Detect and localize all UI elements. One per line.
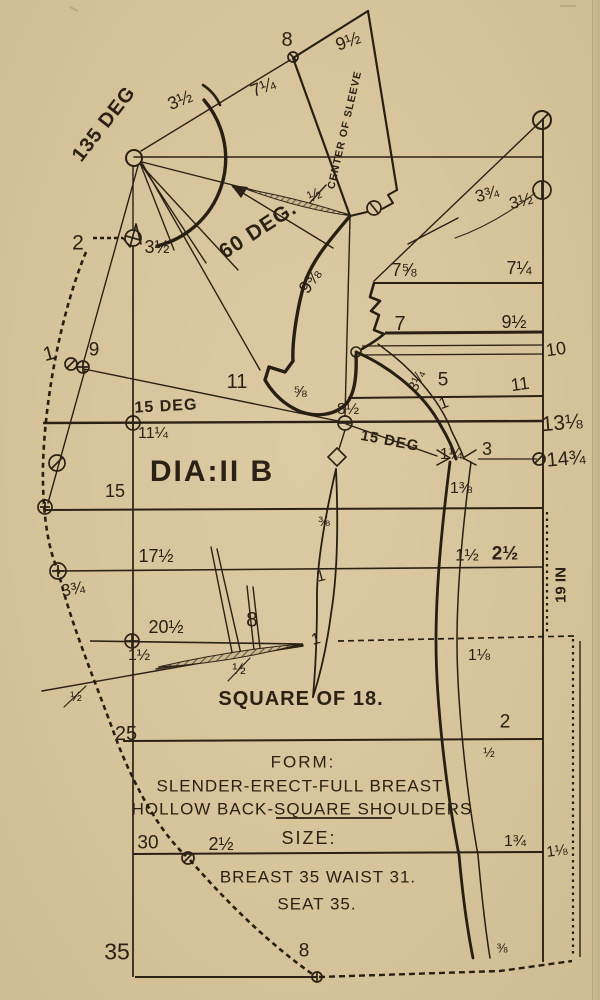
meas-8-mid: 8 xyxy=(246,610,258,631)
meas-half-left: ½ xyxy=(70,689,82,703)
angle-15-deg-left: 15 DEG xyxy=(134,397,198,416)
meas-9half-sleeve: 9½ xyxy=(333,28,363,53)
meas-1-scye: 1 xyxy=(437,395,451,413)
meas-8-top: 8 xyxy=(281,30,292,50)
meas-9threeeighths: 9⅜ xyxy=(295,266,324,297)
meas-7quarter-right: 7¼ xyxy=(506,259,531,277)
meas-9half-right: 9½ xyxy=(501,313,526,331)
meas-1oneeighth-right: 1⅛ xyxy=(546,842,569,860)
meas-threeeighths-bottom: ⅜ xyxy=(497,942,508,955)
meas-11quarter: 11¼ xyxy=(138,426,168,442)
meas-1threequarter-bottom: 1¾ xyxy=(504,834,526,850)
size-line-1: BREAST 35 WAIST 31. xyxy=(220,869,416,886)
meas-2-topleft: 2 xyxy=(72,233,84,254)
meas-1threeeighths: 1⅜ xyxy=(450,481,472,497)
meas-threeeighths-dart: ⅜ xyxy=(318,514,330,528)
meas-3quarter-scye: 3¼ xyxy=(406,368,428,393)
meas-3threequarter-right: 3¾ xyxy=(473,183,500,206)
meas-5: 5 xyxy=(438,371,449,390)
meas-2half-right: 2½ xyxy=(492,545,518,564)
angle-60-deg: 60 DEG. xyxy=(216,197,301,262)
meas-1oneeighth-mid: 1⅛ xyxy=(468,648,490,664)
meas-3: 3 xyxy=(482,440,492,458)
meas-15: 15 xyxy=(105,482,125,500)
angle-135-deg: 135 DEG xyxy=(69,83,140,166)
meas-3half-notch: 3½ xyxy=(144,238,169,256)
meas-11-right: 11 xyxy=(509,374,530,394)
form-heading: FORM: xyxy=(271,754,336,771)
meas-7quarter-sleeve: 7¼ xyxy=(248,74,278,100)
meas-3half-shoulder: 3½ xyxy=(165,87,195,113)
meas-1-dart-a: 1 xyxy=(315,568,328,586)
meas-10: 10 xyxy=(545,339,567,360)
meas-7fiveeighths: 7⅝ xyxy=(391,261,416,279)
meas-1half-left: 1½ xyxy=(128,648,150,664)
size-line-2: SEAT 35. xyxy=(277,896,356,913)
meas-1quarter: 1¼ xyxy=(440,447,462,463)
meas-14threequarter: 14¾ xyxy=(546,447,587,470)
meas-fiveeighths: ⅝ xyxy=(293,385,306,401)
meas-1half-right: 1½ xyxy=(455,547,479,564)
meas-8half: 8½ xyxy=(337,402,359,418)
form-line-2: HOLLOW BACK-SQUARE SHOULDERS xyxy=(132,801,473,818)
meas-2-right: 2 xyxy=(500,713,511,732)
meas-half-right: ½ xyxy=(483,745,495,759)
diagram-id: DIA:II B xyxy=(150,457,274,487)
meas-2half-bottom: 2½ xyxy=(208,835,233,853)
scanned-pattern-page: 135 DEG83½7¼9½CENTER OF SLEEVE½60 DEG.23… xyxy=(0,0,600,1000)
meas-1-dart-b: 1 xyxy=(310,631,323,649)
meas-20half: 20½ xyxy=(148,618,183,636)
note-19-in: 19 IN xyxy=(554,567,569,603)
meas-11-notch: 11 xyxy=(227,372,248,392)
meas-8-bottom: 8 xyxy=(299,942,310,961)
meas-half-sleeve: ½ xyxy=(306,186,325,206)
meas-35: 35 xyxy=(104,941,130,964)
page-edge-shadow xyxy=(592,0,600,1000)
sleeve-axis: CENTER OF SLEEVE xyxy=(326,70,363,190)
angle-15-deg-right: 15 DEG xyxy=(359,428,420,454)
diagram-labels: 135 DEG83½7¼9½CENTER OF SLEEVE½60 DEG.23… xyxy=(0,0,600,1000)
meas-30: 30 xyxy=(137,834,158,853)
meas-half-dart: ½ xyxy=(232,662,245,678)
meas-17half: 17½ xyxy=(138,547,173,565)
meas-3half-right: 3½ xyxy=(507,190,534,213)
meas-9-left: 9 xyxy=(89,341,100,360)
size-heading: SIZE: xyxy=(281,829,336,847)
form-line-1: SLENDER-ERECT-FULL BREAST xyxy=(157,778,444,795)
meas-25: 25 xyxy=(115,724,137,744)
square-of-18: SQUARE OF 18. xyxy=(218,689,383,709)
meas-3threequarter-left: 3¾ xyxy=(60,579,86,600)
meas-7: 7 xyxy=(394,314,405,334)
meas-13oneeighth: 13⅛ xyxy=(541,411,584,435)
meas-1-left: 1 xyxy=(41,343,57,365)
